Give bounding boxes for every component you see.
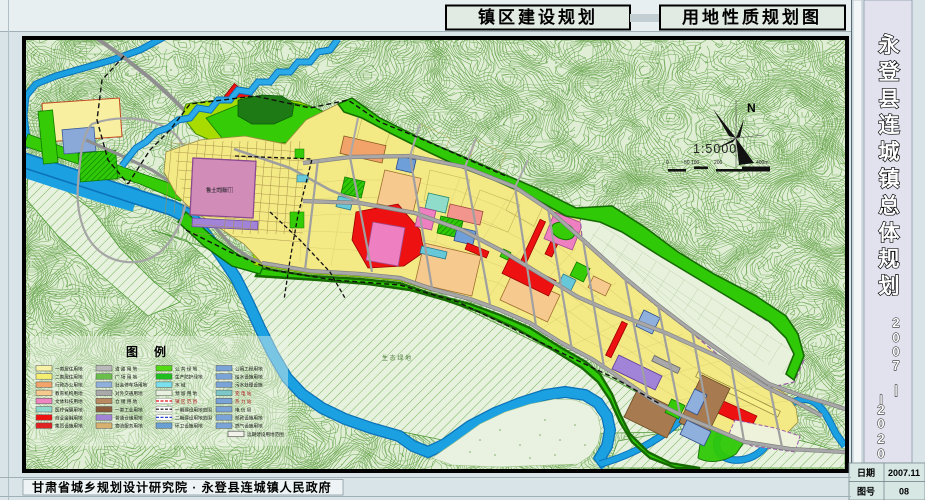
svg-text:体: 体: [879, 222, 901, 245]
svg-text:图例: 图例: [126, 344, 182, 359]
svg-text:镇区建设规划: 镇区建设规划: [478, 7, 598, 27]
svg-text:规: 规: [879, 248, 900, 271]
svg-text:道 路 用 地: 道 路 用 地: [115, 365, 138, 372]
svg-text:物流服务用地: 物流服务用地: [115, 423, 143, 430]
svg-text:城: 城: [879, 140, 900, 164]
svg-text:对外交通用地: 对外交通用地: [115, 390, 143, 397]
svg-text:一期建设用地范围: 一期建设用地范围: [175, 406, 212, 413]
svg-text:预 留 用 地: 预 留 用 地: [175, 390, 198, 397]
svg-text:用地性质规划图: 用地性质规划图: [682, 7, 822, 27]
svg-text:行政办公用地: 行政办公用地: [55, 382, 83, 389]
svg-text:普通仓储用地: 普通仓储用地: [115, 415, 143, 422]
svg-text:划: 划: [879, 275, 900, 298]
svg-text:水 域: 水 域: [175, 382, 186, 388]
svg-text:一类居住用地: 一类居住用地: [55, 365, 83, 372]
svg-text:二期建设用地范围: 二期建设用地范围: [175, 415, 212, 422]
svg-text:电 信 局: 电 信 局: [235, 406, 252, 413]
svg-text:公 共 绿 地: 公 共 绿 地: [175, 365, 198, 372]
svg-text:2007.11: 2007.11: [888, 468, 920, 478]
svg-text:远期建设用地范围: 远期建设用地范围: [247, 431, 284, 438]
svg-text:永: 永: [878, 34, 900, 57]
svg-text:08: 08: [899, 487, 909, 497]
svg-text:社会停车场用地: 社会停车场用地: [115, 382, 148, 389]
svg-text:镇 区 范 围: 镇 区 范 围: [175, 398, 198, 405]
svg-text:|: |: [894, 383, 897, 397]
svg-text:鲁土司衙门: 鲁土司衙门: [206, 187, 231, 194]
svg-text:二类居住用地: 二类居住用地: [55, 374, 83, 381]
svg-text:给水设施用地: 给水设施用地: [235, 374, 263, 381]
svg-text:图号: 图号: [857, 487, 875, 497]
svg-text:2: 2: [877, 402, 884, 417]
svg-text:生 态 绿 地: 生 态 绿 地: [382, 354, 411, 362]
svg-text:燃气设施用地: 燃气设施用地: [235, 423, 263, 430]
svg-text:一类工业用地: 一类工业用地: [115, 406, 143, 413]
svg-text:50 100: 50 100: [684, 160, 700, 166]
svg-text:热 力 站: 热 力 站: [235, 398, 252, 405]
svg-text:1:5000: 1:5000: [693, 142, 737, 156]
svg-text:县: 县: [879, 88, 900, 111]
svg-text:广 场 用 地: 广 场 用 地: [115, 374, 138, 381]
svg-text:N: N: [747, 101, 756, 115]
svg-text:7: 7: [892, 358, 899, 373]
svg-text:0: 0: [877, 416, 884, 431]
svg-text:公用工程用地: 公用工程用地: [235, 365, 263, 372]
svg-text:2: 2: [877, 431, 884, 446]
svg-text:镇: 镇: [879, 168, 900, 191]
svg-text:生产防护绿地: 生产防护绿地: [175, 374, 203, 381]
svg-text:登: 登: [878, 60, 901, 84]
svg-text:2: 2: [892, 315, 899, 330]
svg-text:仓 储 用 地: 仓 储 用 地: [115, 398, 138, 405]
svg-text:200: 200: [714, 160, 723, 166]
svg-text:集贸设施用地: 集贸设施用地: [55, 423, 83, 430]
svg-text:400m: 400m: [756, 160, 769, 166]
svg-text:总: 总: [879, 194, 900, 218]
svg-text:文体科技用地: 文体科技用地: [55, 398, 83, 405]
svg-text:医疗保健用地: 医疗保健用地: [55, 406, 83, 413]
svg-text:甘肃省城乡规划设计研究院 · 永登县连城镇人民政府: 甘肃省城乡规划设计研究院 · 永登县连城镇人民政府: [32, 480, 332, 495]
svg-text:0: 0: [892, 330, 899, 345]
svg-text:邮政设施用地: 邮政设施用地: [235, 415, 263, 422]
svg-text:0: 0: [666, 160, 669, 166]
svg-text:0: 0: [892, 344, 899, 359]
svg-text:污水处理设施: 污水处理设施: [235, 382, 263, 389]
svg-text:商业金融用地: 商业金融用地: [55, 415, 83, 422]
svg-text:日期: 日期: [857, 467, 875, 478]
svg-text:连: 连: [879, 113, 901, 137]
svg-text:环卫设施用地: 环卫设施用地: [175, 423, 203, 430]
svg-text:变 电 站: 变 电 站: [235, 390, 252, 397]
svg-text:教育机构用地: 教育机构用地: [55, 390, 83, 397]
svg-text:0: 0: [877, 446, 884, 461]
